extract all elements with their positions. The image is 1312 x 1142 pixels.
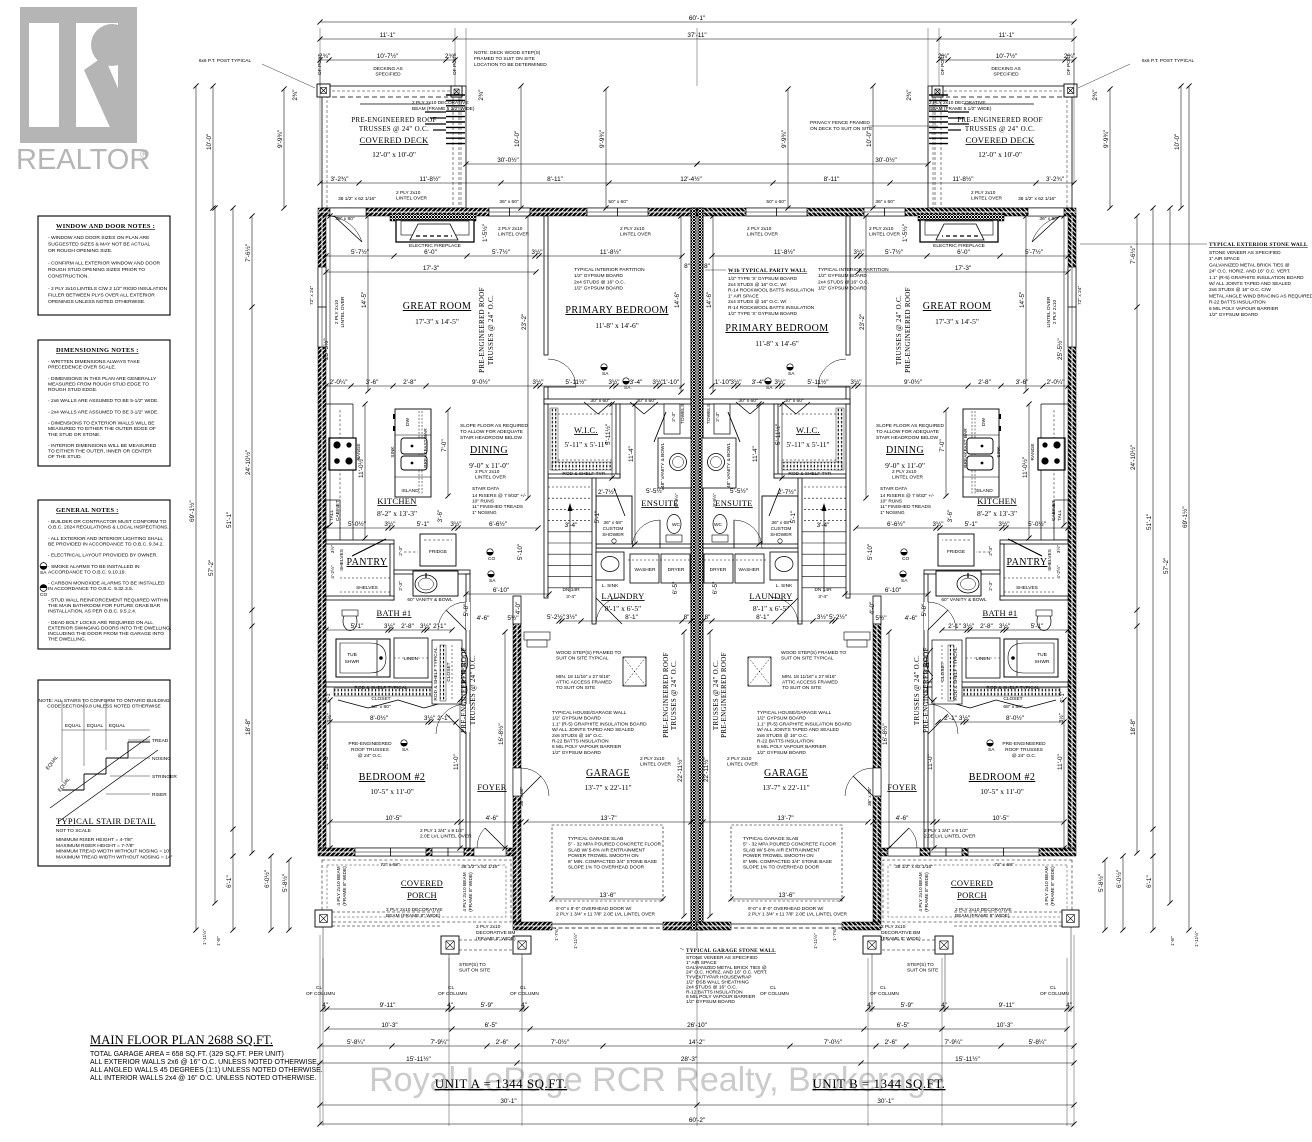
- svg-text:TYPICAL GARAGE SLAB: TYPICAL GARAGE SLAB: [568, 836, 623, 842]
- svg-text:PRE-ENGINEERED ROOF: PRE-ENGINEERED ROOF: [460, 647, 468, 733]
- svg-text:9'-0" x 8'-0" OVERHEAD DOOR W/: 9'-0" x 8'-0" OVERHEAD DOOR W/: [748, 906, 824, 912]
- svg-text:4'-6": 4'-6": [905, 615, 918, 622]
- svg-text:- DIMENSIONS TO EXTERIOR WALLS: - DIMENSIONS TO EXTERIOR WALLS WILL BE: [48, 421, 155, 427]
- svg-text:12'-0" x 10'-0": 12'-0" x 10'-0": [372, 150, 416, 159]
- svg-text:5'-11" x 5'-11": 5'-11" x 5'-11": [786, 440, 829, 449]
- svg-text:PRE-ENGINEERED ROOF: PRE-ENGINEERED ROOF: [478, 287, 486, 373]
- svg-text:SHELVES: SHELVES: [1016, 585, 1038, 591]
- svg-text:2 PLY 2x10: 2 PLY 2x10: [334, 299, 340, 324]
- svg-text:1/2" GYPSUM BOARD: 1/2" GYPSUM BOARD: [574, 286, 623, 292]
- svg-text:11'-8" x 14'-6": 11'-8" x 14'-6": [755, 339, 799, 348]
- svg-text:2¾": 2¾": [1092, 89, 1099, 100]
- svg-text:2'-3": 2'-3": [988, 546, 994, 556]
- svg-text:6x6 P.T. POST TYPICAL: 6x6 P.T. POST TYPICAL: [199, 58, 252, 64]
- svg-text:8'-11": 8'-11": [547, 176, 563, 183]
- svg-text:2x6 STUDS @ 16" O.C. C/W: 2x6 STUDS @ 16" O.C. C/W: [1209, 287, 1271, 293]
- svg-text:1" NOSING: 1" NOSING: [472, 510, 497, 516]
- svg-text:5'-10": 5'-10": [867, 544, 874, 560]
- svg-text:1'-5½": 1'-5½": [481, 224, 489, 242]
- svg-text:1'-10": 1'-10": [715, 379, 731, 386]
- svg-text:4'-2½": 4'-2½": [329, 565, 336, 579]
- svg-text:ROD & SHELF TYP.: ROD & SHELF TYP.: [788, 471, 831, 477]
- svg-text:6 MIL POLY VAPOUR BARRIER: 6 MIL POLY VAPOUR BARRIER: [757, 744, 827, 750]
- svg-text:13'-7" x 22'-11": 13'-7" x 22'-11": [584, 783, 631, 792]
- svg-text:2x4 STUDS @ 16" O.C. W/: 2x4 STUDS @ 16" O.C. W/: [728, 299, 787, 305]
- svg-text:36" x 68": 36" x 68": [771, 520, 790, 526]
- svg-text:ATTIC ACCESS FRAMED: ATTIC ACCESS FRAMED: [782, 680, 838, 686]
- svg-text:TYPICAL HOUSE/GARAGE WALL: TYPICAL HOUSE/GARAGE WALL: [757, 710, 832, 716]
- svg-text:10'-5" x 11'-0": 10'-5" x 11'-0": [980, 787, 1024, 796]
- svg-text:TRUSSES @ 24" O.C.: TRUSSES @ 24" O.C.: [712, 660, 720, 730]
- svg-text:3'-6": 3'-6": [1016, 379, 1029, 386]
- svg-text:BEDROOM #2: BEDROOM #2: [969, 772, 1036, 783]
- svg-text:4'-0": 4'-0": [515, 602, 522, 615]
- svg-text:3½": 3½": [326, 713, 333, 722]
- svg-text:6'-6½": 6'-6½": [489, 520, 507, 528]
- svg-text:1'-11½": 1'-11½": [572, 933, 579, 949]
- svg-text:7'-0½": 7'-0½": [551, 1038, 569, 1046]
- svg-text:9'-9¾": 9'-9¾": [781, 130, 788, 148]
- svg-text:SA: SA: [402, 747, 409, 753]
- svg-text:INCLUDING THE DOOR FROM THE GA: INCLUDING THE DOOR FROM THE GARAGE INTO: [48, 631, 164, 637]
- svg-text:SA: SA: [901, 578, 908, 584]
- svg-text:TYPICAL EXTERIOR STONE WALL: TYPICAL EXTERIOR STONE WALL: [1209, 242, 1308, 248]
- svg-text:®: ®: [140, 147, 149, 161]
- svg-text:3½": 3½": [932, 520, 943, 528]
- svg-text:THE STUD OR STONE.: THE STUD OR STONE.: [48, 432, 101, 438]
- svg-text:5" - 32 MPA POURED CONCRETE FL: 5" - 32 MPA POURED CONCRETE FLOOR: [568, 842, 662, 848]
- svg-text:SHWR: SHWR: [345, 659, 360, 665]
- svg-text:6'-5": 6'-5": [712, 582, 719, 595]
- svg-text:2 PLY 2x10: 2 PLY 2x10: [892, 469, 917, 475]
- svg-text:38 1/2" x 82 1/16": 38 1/2" x 82 1/16": [895, 864, 933, 870]
- svg-text:5'-7½": 5'-7½": [351, 248, 369, 256]
- svg-text:ELECTRIC FIREPLACE: ELECTRIC FIREPLACE: [933, 243, 985, 249]
- svg-text:8'-9½": 8'-9½": [711, 493, 718, 507]
- svg-text:13'-6": 13'-6": [778, 892, 794, 899]
- svg-text:METAL ANGLE WIND BRACING AS RE: METAL ANGLE WIND BRACING AS REQUIRED: [1209, 293, 1312, 299]
- svg-text:1'-8": 1'-8": [216, 936, 222, 946]
- svg-text:MINIMUM RISER HEIGHT = 4-7/8": MINIMUM RISER HEIGHT = 4-7/8": [56, 837, 133, 843]
- svg-text:5'-8½": 5'-8½": [1097, 874, 1105, 892]
- svg-text:SHWR: SHWR: [1035, 659, 1050, 665]
- svg-text:8'-11": 8'-11": [824, 176, 840, 183]
- svg-text:1/2" GYPSUM BOARD: 1/2" GYPSUM BOARD: [757, 716, 806, 722]
- svg-text:PRE-ENGINEERED ROOF: PRE-ENGINEERED ROOF: [904, 287, 912, 373]
- svg-text:11'-0": 11'-0": [927, 754, 934, 770]
- svg-text:6'-0": 6'-0": [424, 249, 437, 256]
- svg-text:LINTEL OVER: LINTEL OVER: [869, 231, 901, 237]
- svg-text:SUIT ON SITE: SUIT ON SITE: [907, 968, 938, 974]
- svg-text:1/2" GYPSUM BOARD: 1/2" GYPSUM BOARD: [552, 750, 601, 756]
- svg-text:LINTEL OVER: LINTEL OVER: [727, 761, 759, 767]
- svg-text:CONSTRUCTION.: CONSTRUCTION.: [48, 273, 89, 279]
- svg-text:1/2" TYPE 'X' GYPSUM BOARD: 1/2" TYPE 'X' GYPSUM BOARD: [728, 311, 798, 317]
- svg-text:- 2x6 WALLS ARE ASSUMED TO BE: - 2x6 WALLS ARE ASSUMED TO BE 5-1/2" WID…: [48, 398, 159, 404]
- svg-text:6" MIN. COMPACTED 3/4" STONE B: 6" MIN. COMPACTED 3/4" STONE BASE: [568, 859, 657, 865]
- svg-text:11'-0½": 11'-0½": [1021, 457, 1029, 478]
- svg-text:2'-1": 2'-1": [944, 715, 957, 722]
- svg-text:23'-2": 23'-2": [859, 314, 866, 330]
- svg-text:- ELECTRICAL LAYOUT PROVIDED B: - ELECTRICAL LAYOUT PROVIDED BY OWNER.: [48, 553, 158, 559]
- svg-text:ROD & SHELF TYP.: ROD & SHELF TYP.: [562, 471, 605, 477]
- svg-text:RISER: RISER: [152, 792, 167, 798]
- svg-text:PORCH: PORCH: [407, 890, 437, 900]
- svg-text:2'-3": 2'-3": [988, 581, 994, 591]
- svg-text:10" RUNS: 10" RUNS: [880, 499, 902, 505]
- svg-text:CABINET: CABINET: [335, 500, 341, 521]
- svg-text:SLOPE 1% TO OVERHEAD DOOR: SLOPE 1% TO OVERHEAD DOOR: [743, 865, 820, 871]
- svg-text:8": 8": [684, 263, 690, 270]
- svg-text:5'-2½": 5'-2½": [829, 613, 847, 621]
- svg-text:1'-7¾": 1'-7¾": [832, 927, 838, 941]
- svg-text:COVERED: COVERED: [401, 878, 443, 888]
- svg-text:25'-5½": 25'-5½": [322, 338, 330, 360]
- svg-text:PRE-ENGINEERED ROOF: PRE-ENGINEERED ROOF: [957, 116, 1043, 124]
- svg-text:6'-10": 6'-10": [885, 587, 901, 594]
- svg-text:OPENINGS UNLESS NOTED OTHERWIS: OPENINGS UNLESS NOTED OTHERWISE.: [48, 299, 145, 305]
- svg-text:30'-0½": 30'-0½": [497, 156, 519, 164]
- svg-text:BREAKFAST BAR: BREAKFAST BAR: [423, 428, 429, 468]
- svg-text:4 PLY 2x10 BEAM: 4 PLY 2x10 BEAM: [336, 866, 342, 905]
- svg-text:15'-11½": 15'-11½": [406, 1055, 431, 1063]
- svg-text:SA: SA: [602, 371, 609, 377]
- svg-text:5'-1": 5'-1": [1031, 623, 1044, 630]
- svg-text:3'-4": 3'-4": [565, 522, 578, 529]
- svg-text:9'-0" x 11'-0": 9'-0" x 11'-0": [469, 461, 509, 470]
- svg-text:TYPICAL INTERIOR PARTITION: TYPICAL INTERIOR PARTITION: [574, 267, 645, 273]
- svg-text:3'-2¾": 3'-2¾": [1046, 176, 1064, 183]
- svg-text:ROD & SHELF TYPICAL: ROD & SHELF TYPICAL: [433, 647, 439, 701]
- svg-text:30'-1": 30'-1": [500, 1098, 516, 1105]
- svg-text:NOSING: NOSING: [152, 756, 171, 762]
- svg-text:6x6 P.T. POST TYPICAL: 6x6 P.T. POST TYPICAL: [1142, 58, 1195, 64]
- svg-text:@ 24" O.C.: @ 24" O.C.: [358, 753, 382, 759]
- svg-text:ENSUITE: ENSUITE: [641, 498, 679, 508]
- svg-text:LOCATION TO BE DETERMINED: LOCATION TO BE DETERMINED: [474, 62, 547, 68]
- svg-text:TRUSSES @ 24" O.C.: TRUSSES @ 24" O.C.: [359, 125, 429, 133]
- svg-text:CL: CL: [1050, 985, 1056, 991]
- svg-text:10'-0": 10'-0": [514, 131, 521, 147]
- svg-text:DN 14R: DN 14R: [814, 587, 832, 593]
- svg-text:W/ ALL JOINTS TAPED AND SEALED: W/ ALL JOINTS TAPED AND SEALED: [757, 727, 840, 733]
- svg-text:EQUAL: EQUAL: [109, 723, 126, 729]
- svg-text:WASHER: WASHER: [635, 567, 656, 573]
- svg-text:TRUSSES @ 24" O.C.: TRUSSES @ 24" O.C.: [965, 125, 1035, 133]
- svg-text:WASHER: WASHER: [739, 567, 760, 573]
- svg-text:2'-8": 2'-8": [978, 379, 991, 386]
- svg-text:PRE-ENGINEERED ROOF: PRE-ENGINEERED ROOF: [720, 652, 728, 738]
- svg-text:GREAT ROOM: GREAT ROOM: [403, 301, 472, 312]
- svg-text:16'-8½": 16'-8½": [881, 723, 889, 745]
- svg-text:OF POST: OF POST: [1066, 54, 1072, 75]
- svg-text:LINTEL OVER: LINTEL OVER: [475, 474, 507, 480]
- svg-text:PANTRY: PANTRY: [1007, 557, 1048, 568]
- svg-text:- 2 PLY 2x10 LINTELS C/W 2 1/2: - 2 PLY 2x10 LINTELS C/W 2 1/2" RIGID IN…: [48, 286, 168, 292]
- svg-text:2x6 STUDS @ 16" O.C.: 2x6 STUDS @ 16" O.C.: [552, 733, 603, 739]
- svg-text:ISLAND: ISLAND: [401, 488, 419, 494]
- svg-text:- 2x4 WALLS ARE ASSUMED TO BE: - 2x4 WALLS ARE ASSUMED TO BE 3-1/2" WID…: [48, 409, 159, 415]
- svg-text:11'-4": 11'-4": [752, 446, 759, 462]
- svg-text:5'-1": 5'-1": [594, 511, 601, 524]
- svg-text:36" x 60": 36" x 60": [499, 199, 518, 205]
- svg-text:3½": 3½": [1055, 545, 1062, 554]
- svg-text:NOT TO SCALE: NOT TO SCALE: [56, 828, 91, 834]
- svg-text:W.I.C.: W.I.C.: [574, 425, 598, 435]
- svg-text:SUIT ON SITE TYPICAL: SUIT ON SITE TYPICAL: [556, 656, 609, 662]
- svg-text:SHELVES: SHELVES: [1047, 549, 1053, 571]
- svg-text:5'-7½": 5'-7½": [885, 248, 903, 256]
- svg-text:RANGE: RANGE: [1030, 443, 1036, 460]
- svg-text:2'-3": 2'-3": [671, 412, 677, 422]
- svg-text:11'-0": 11'-0": [453, 754, 460, 770]
- svg-text:COVERED DECK: COVERED DECK: [965, 135, 1035, 145]
- svg-text:11'-8½": 11'-8½": [952, 175, 973, 183]
- svg-text:6'-5": 6'-5": [672, 582, 679, 595]
- svg-text:10'-3": 10'-3": [381, 1022, 397, 1029]
- svg-text:ATTIC ACCESS FRAMED: ATTIC ACCESS FRAMED: [556, 680, 612, 686]
- svg-text:5'-7½": 5'-7½": [492, 248, 510, 256]
- svg-text:DECKING AS: DECKING AS: [991, 66, 1020, 72]
- svg-text:MAIN FLOOR PLAN 2688 SQ.FT.: MAIN FLOOR PLAN 2688 SQ.FT.: [90, 1033, 273, 1047]
- svg-text:7'-9¼": 7'-9¼": [944, 1039, 962, 1046]
- svg-text:(FRAME 8" WIDE): (FRAME 8" WIDE): [342, 866, 348, 906]
- svg-text:5'-0½": 5'-0½": [1028, 520, 1046, 528]
- svg-text:72" x 24": 72" x 24": [1077, 286, 1083, 305]
- svg-text:7'-0": 7'-0": [939, 439, 946, 452]
- svg-text:R-22 BATTS INSULATION: R-22 BATTS INSULATION: [1209, 300, 1266, 306]
- svg-text:TRUSSES @ 24" O.C.: TRUSSES @ 24" O.C.: [469, 655, 477, 725]
- svg-text:TYPICAL STAIR DETAIL: TYPICAL STAIR DETAIL: [56, 816, 156, 826]
- svg-text:1" NOSING: 1" NOSING: [880, 510, 905, 516]
- svg-text:36" x 68": 36" x 68": [603, 520, 622, 526]
- svg-text:SA: SA: [489, 578, 496, 584]
- svg-text:69'-1½": 69'-1½": [1181, 506, 1189, 528]
- svg-text:OR ROUGH OPENING SIZE.: OR ROUGH OPENING SIZE.: [48, 248, 112, 254]
- svg-text:SA: SA: [40, 570, 47, 576]
- svg-text:22'-11½": 22'-11½": [676, 757, 684, 782]
- svg-text:BATH #1: BATH #1: [377, 608, 412, 618]
- svg-text:THE DWELLING.: THE DWELLING.: [48, 637, 86, 643]
- svg-text:FOYER: FOYER: [477, 782, 506, 792]
- svg-text:FRIDGE: FRIDGE: [429, 549, 447, 555]
- svg-text:12'-4½": 12'-4½": [680, 175, 702, 183]
- svg-text:17'-3" x 14'-5": 17'-3" x 14'-5": [935, 317, 979, 326]
- svg-text:7'-0½": 7'-0½": [824, 1038, 842, 1046]
- svg-text:3½": 3½": [730, 378, 741, 386]
- svg-text:3½": 3½": [531, 248, 542, 256]
- svg-text:L. SINK: L. SINK: [776, 583, 793, 589]
- svg-text:1'-11½": 1'-11½": [812, 933, 819, 949]
- svg-text:38 1/2" x 62 1/16": 38 1/2" x 62 1/16": [338, 196, 376, 202]
- svg-text:CLOSET: CLOSET: [940, 662, 946, 681]
- svg-text:6'-0": 6'-0": [957, 249, 970, 256]
- svg-text:36" x 80": 36" x 80": [519, 787, 525, 806]
- svg-text:OF COLUMN: OF COLUMN: [306, 991, 335, 997]
- svg-text:DECORATIVE BM: DECORATIVE BM: [881, 930, 920, 936]
- svg-text:- DEAD BOLT LOCKS ARE REQUIRED: - DEAD BOLT LOCKS ARE REQUIRED ON ALL: [48, 620, 153, 626]
- svg-text:68" x 80": 68" x 80": [371, 704, 390, 710]
- svg-text:STONE VENEER AS SPECIFIED: STONE VENEER AS SPECIFIED: [1209, 250, 1281, 256]
- svg-text:2'-3": 2'-3": [398, 581, 404, 591]
- svg-text:2x4 STUDS @ 16" O.C.: 2x4 STUDS @ 16" O.C.: [574, 279, 625, 285]
- svg-text:MIN. 18 11/16" x 27 9/16": MIN. 18 11/16" x 27 9/16": [556, 674, 611, 680]
- svg-text:COVERED: COVERED: [951, 878, 993, 888]
- svg-text:2'-8": 2'-8": [401, 623, 414, 630]
- svg-text:14'-5": 14'-5": [1019, 292, 1026, 308]
- svg-text:8'-1": 8'-1": [625, 614, 638, 621]
- svg-text:- SMOKE ALARMS TO BE INSTALLED: - SMOKE ALARMS TO BE INSTALLED IN: [48, 564, 140, 570]
- svg-text:CUSTOM: CUSTOM: [603, 526, 624, 532]
- svg-text:CO: CO: [902, 556, 909, 562]
- svg-text:2'-0¼": 2'-0¼": [1046, 379, 1064, 386]
- svg-text:5½": 5½": [507, 614, 518, 622]
- svg-text:4 PLY 2x10 BEAM: 4 PLY 2x10 BEAM: [1044, 866, 1050, 905]
- svg-text:13'-7": 13'-7": [600, 815, 616, 822]
- svg-text:O.B.C. 2024 REGULATIONS & LOCA: O.B.C. 2024 REGULATIONS & LOCAL INSPECTI…: [48, 525, 169, 531]
- svg-text:R-14 ROCKWOOL BATTS INSULATION: R-14 ROCKWOOL BATTS INSULATION: [728, 288, 815, 294]
- svg-text:CL: CL: [770, 985, 776, 991]
- svg-text:W/ ALL JOINTS TAPED AND SEALED: W/ ALL JOINTS TAPED AND SEALED: [1209, 281, 1292, 287]
- svg-text:MIN. 18 11/16" x 27 9/16": MIN. 18 11/16" x 27 9/16": [782, 674, 837, 680]
- svg-text:2 PLY 2x10: 2 PLY 2x10: [747, 226, 772, 232]
- svg-text:12'-0" x 10'-0": 12'-0" x 10'-0": [978, 150, 1022, 159]
- svg-text:LINEN: LINEN: [404, 656, 419, 662]
- svg-text:DINING: DINING: [886, 445, 924, 456]
- svg-text:6'-5": 6'-5": [485, 1022, 498, 1029]
- svg-text:STEP(S) TO: STEP(S) TO: [907, 962, 934, 968]
- svg-text:TALL: TALL: [1057, 510, 1063, 521]
- svg-text:1" AIR SPACE: 1" AIR SPACE: [728, 293, 759, 299]
- svg-text:6'-5": 6'-5": [897, 1022, 910, 1029]
- svg-text:3'-2¾": 3'-2¾": [330, 176, 348, 183]
- svg-text:2'-8": 2'-8": [980, 623, 993, 630]
- svg-text:3½": 3½": [450, 520, 461, 528]
- svg-text:TRUSSES @ 24" O.C.: TRUSSES @ 24" O.C.: [895, 295, 903, 365]
- svg-text:ALL ANGLED WALLS 45 DEGREES (1: ALL ANGLED WALLS 45 DEGREES (1:1) UNLESS…: [90, 1067, 323, 1074]
- svg-text:5½": 5½": [875, 614, 886, 622]
- svg-text:(FRAME 8" WIDE): (FRAME 8" WIDE): [468, 872, 474, 912]
- svg-text:TO ALLOW FOR ADEQUATE: TO ALLOW FOR ADEQUATE: [876, 429, 939, 435]
- svg-text:8'-1" x 6'-5": 8'-1" x 6'-5": [605, 604, 641, 613]
- svg-text:3½": 3½": [566, 613, 577, 621]
- svg-text:DW: DW: [981, 418, 987, 426]
- svg-text:2 PLY 2x10: 2 PLY 2x10: [727, 756, 752, 762]
- svg-text:10'-0": 10'-0": [866, 131, 873, 147]
- svg-text:TO SUIT ON SITE: TO SUIT ON SITE: [556, 685, 595, 691]
- svg-text:36" x 60": 36" x 60": [875, 199, 894, 205]
- svg-text:LINTEL OVER: LINTEL OVER: [971, 195, 1003, 201]
- svg-text:11'-8½": 11'-8½": [774, 248, 795, 256]
- svg-text:LINTEL OVER: LINTEL OVER: [396, 195, 428, 201]
- svg-text:2 PLY 2x10: 2 PLY 2x10: [640, 756, 665, 762]
- svg-text:COVERED DECK: COVERED DECK: [359, 135, 429, 145]
- svg-text:- CONFIRM ALL EXTERIOR WINDOW: - CONFIRM ALL EXTERIOR WINDOW AND DOOR: [48, 261, 161, 267]
- svg-text:2 PLY 1 3/4" x 9 1/2": 2 PLY 1 3/4" x 9 1/2": [924, 828, 968, 834]
- svg-text:3'-6": 3'-6": [437, 510, 444, 523]
- svg-text:11" FINISHED TREADS: 11" FINISHED TREADS: [880, 504, 931, 510]
- svg-text:6'-0½": 6'-0½": [1115, 870, 1123, 888]
- svg-text:3'-4": 3'-4": [817, 522, 830, 529]
- svg-text:MEASURED TO EITHER THE OUTER E: MEASURED TO EITHER THE OUTER EDGE OF: [48, 426, 156, 432]
- svg-text:CO: CO: [488, 556, 495, 562]
- svg-text:8'-0½": 8'-0½": [1006, 714, 1024, 722]
- svg-text:2 PLY 2x10 DECORATIVE: 2 PLY 2x10 DECORATIVE: [955, 907, 1012, 913]
- svg-text:- STUD WALL REINFORCEMENT REQU: - STUD WALL REINFORCEMENT REQUIRED WITHI…: [48, 597, 169, 603]
- svg-text:38 1/2" x 82 1/16": 38 1/2" x 82 1/16": [461, 864, 499, 870]
- svg-text:CLOSET: CLOSET: [446, 662, 452, 681]
- svg-text:3½": 3½": [999, 622, 1010, 630]
- svg-text:PRIMARY BEDROOM: PRIMARY BEDROOM: [725, 323, 828, 334]
- svg-text:POWER TROWEL SMOOTH ON: POWER TROWEL SMOOTH ON: [568, 853, 639, 859]
- svg-text:SUGGESTED SIZES & MAY NOT BE A: SUGGESTED SIZES & MAY NOT BE ACTUAL: [48, 241, 150, 247]
- svg-text:2'-1": 2'-1": [437, 715, 450, 722]
- svg-text:PRECEDENCE OVER SCALE.: PRECEDENCE OVER SCALE.: [48, 365, 116, 371]
- svg-text:1.1" (R-5) GRAPHITE INSULATION: 1.1" (R-5) GRAPHITE INSULATION BOARD: [1209, 275, 1304, 281]
- svg-text:5'-5½": 5'-5½": [730, 487, 748, 495]
- svg-text:PRIMARY BEDROOM: PRIMARY BEDROOM: [565, 305, 668, 316]
- svg-text:BEDROOM #2: BEDROOM #2: [359, 772, 426, 783]
- svg-text:6'-1": 6'-1": [1146, 875, 1153, 888]
- svg-text:EQUAL: EQUAL: [65, 723, 82, 729]
- svg-text:18'-8": 18'-8": [1130, 719, 1137, 735]
- svg-text:BE PROVIDED IN ACCORDANCE TO O: BE PROVIDED IN ACCORDANCE TO O.B.C. 9.34…: [48, 541, 164, 547]
- svg-text:LINTEL OVER: LINTEL OVER: [640, 761, 672, 767]
- svg-text:SINK: SINK: [390, 446, 396, 458]
- svg-text:FRAMED TO SUIT ON SITE: FRAMED TO SUIT ON SITE: [474, 56, 535, 62]
- svg-text:2¾": 2¾": [478, 89, 485, 100]
- svg-text:14'-2": 14'-2": [688, 1039, 704, 1046]
- svg-text:2'-1": 2'-1": [948, 623, 961, 630]
- svg-text:LINTEL OVER: LINTEL OVER: [747, 231, 779, 237]
- svg-text:WINDOW AND DOOR NOTES :: WINDOW AND DOOR NOTES :: [56, 223, 155, 230]
- svg-text:STAIR HEADROOM BELOW: STAIR HEADROOM BELOW: [460, 435, 522, 441]
- svg-text:3½": 3½": [850, 378, 861, 386]
- svg-text:3½": 3½": [817, 613, 828, 621]
- svg-text:UNIT B = 1344 SQ.FT.: UNIT B = 1344 SQ.FT.: [812, 1076, 945, 1091]
- svg-text:PRIVACY FENCE FRAMED: PRIVACY FENCE FRAMED: [810, 120, 870, 126]
- svg-text:ROD & SHELF TYPICAL: ROD & SHELF TYPICAL: [354, 685, 408, 691]
- svg-text:ACCORDANCE TO O.B.C. 9.10.19.: ACCORDANCE TO O.B.C. 9.10.19.: [48, 569, 126, 575]
- svg-text:8'-9½": 8'-9½": [673, 493, 680, 507]
- svg-text:30" x 60": 30" x 60": [738, 398, 757, 404]
- svg-text:1'-8": 1'-8": [1170, 936, 1176, 946]
- svg-text:OF COLUMN: OF COLUMN: [870, 991, 899, 997]
- svg-text:3'-4": 3'-4": [566, 594, 576, 600]
- svg-text:2 PLY 2x10: 2 PLY 2x10: [620, 226, 645, 232]
- svg-text:7'-9¼": 7'-9¼": [430, 1039, 448, 1046]
- svg-text:SPECIFIED: SPECIFIED: [993, 72, 1019, 78]
- svg-text:17'-3": 17'-3": [955, 265, 971, 272]
- svg-text:3½": 3½": [608, 378, 619, 386]
- svg-text:CL: CL: [880, 985, 886, 991]
- svg-text:4'-6": 4'-6": [896, 815, 909, 822]
- svg-text:GENERAL NOTES :: GENERAL NOTES :: [56, 507, 119, 514]
- svg-text:2'-0¼": 2'-0¼": [329, 379, 347, 386]
- svg-text:10'-0": 10'-0": [1174, 134, 1181, 150]
- svg-text:GARAGE: GARAGE: [586, 768, 630, 779]
- svg-text:4'-2½": 4'-2½": [1055, 565, 1062, 579]
- svg-text:2 PLY 2x10: 2 PLY 2x10: [396, 190, 421, 196]
- svg-text:SHOWER: SHOWER: [770, 532, 792, 538]
- svg-text:BREAKFAST BAR: BREAKFAST BAR: [963, 428, 969, 468]
- svg-text:5'-1": 5'-1": [965, 521, 978, 528]
- svg-text:8'-0½": 8'-0½": [370, 714, 388, 722]
- svg-text:OF COLUMN: OF COLUMN: [760, 991, 789, 997]
- svg-text:11'-0": 11'-0": [323, 754, 330, 770]
- svg-text:LINTEL OVER: LINTEL OVER: [498, 231, 530, 237]
- svg-text:DRYER: DRYER: [710, 567, 727, 573]
